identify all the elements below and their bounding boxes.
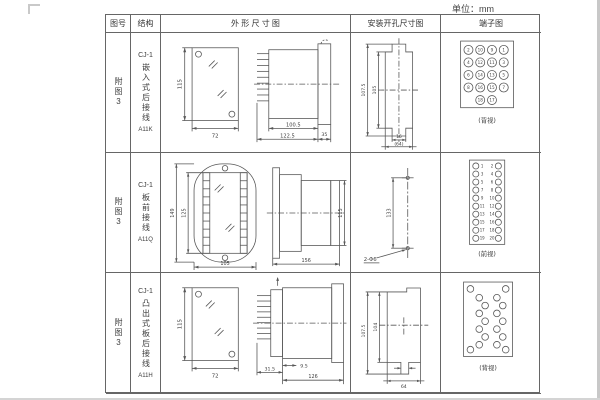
terminal-circles [467,286,509,353]
dim-cutout-width: 64 [400,384,406,390]
svg-text:13: 13 [480,211,485,216]
scan-corner-mark [28,4,40,14]
svg-text:14: 14 [489,211,494,216]
svg-text:15: 15 [489,85,495,90]
terminal-caption: (前视) [478,249,496,258]
dim-inner-height: 104 [372,323,378,332]
svg-text:5: 5 [502,72,505,77]
fig-no-text: 附图3 [114,77,122,108]
dimension-table: 图号 结构 外 形 尺 寸 图 安装开孔尺寸图 端子图 附图3 CJ-1 嵌入式… [105,14,540,393]
svg-text:17: 17 [489,97,495,102]
code-label: A11H [138,373,153,379]
dim-front-width: 72 [211,133,218,139]
dim-front-width: 72 [211,373,218,379]
svg-text:8: 8 [491,187,494,192]
structure-label: 嵌入式后接线 [142,63,150,123]
svg-text:3: 3 [481,171,484,176]
svg-text:10: 10 [478,47,484,52]
model-label: CJ-1 [138,288,153,295]
terminal-circles: 210914121136141358161571817 [464,45,508,104]
terminal-cell-a11k: 210914121136141358161571817 (背视) [441,33,541,153]
side-view: 100.5 122.5 35 [254,39,341,141]
header-fig-no: 图号 [106,15,131,33]
mounting-drawing-a11h: 107.5 104 64 [352,274,440,392]
dim-depth: 156 [301,258,310,264]
svg-text:6: 6 [491,179,494,184]
structure-a11h: CJ-1 凸出式板后接线 A11H [131,273,161,394]
dim-tab-width: 16 [396,133,402,139]
terminal-diagram-a11h: (背视) [442,274,540,392]
structure-a11q: CJ-1 板前接线 A11Q [131,153,161,273]
terminal-circles: 1357911131517192468101214161820 [473,162,502,240]
dim-front-height: 115 [177,319,183,329]
document-page: 单位：mm 图号 结构 外 形 尺 寸 图 安装开孔尺寸图 端子图 附图3 CJ… [0,0,600,400]
header-mounting: 安装开孔尺寸图 [351,15,441,33]
svg-text:5: 5 [481,179,484,184]
front-view: 115 72 [177,47,238,138]
svg-text:3: 3 [502,59,505,64]
code-label: A11K [138,127,152,133]
dim-outer-height: 107.5 [361,83,367,96]
dim-front-height: 115 [177,79,183,89]
terminal-diagram-a11q: 1357911131517192468101214161820 (前视) [442,154,540,272]
dim-outer-height: 149 [169,208,175,217]
dim-front-width: 105 [220,261,229,267]
dim-outer-height: 107.5 [361,325,367,338]
fig-no-a11h: 附图3 [106,273,131,394]
dim-base-depth: 31.5 [264,366,275,372]
fig-no-text: 附图3 [114,197,122,228]
model-label: CJ-1 [138,52,153,59]
outline-drawing-a11k: 115 72 100.5 [162,34,350,152]
svg-text:9: 9 [481,195,484,200]
structure-a11k: CJ-1 嵌入式后接线 A11K [131,33,161,153]
svg-text:1: 1 [481,163,484,168]
svg-text:15: 15 [480,219,485,224]
svg-text:7: 7 [481,187,484,192]
dim-inner-height: 125 [181,208,187,217]
dim-offset: 9.5 [300,363,308,369]
header-structure: 结构 [131,15,161,33]
svg-text:18: 18 [489,227,494,232]
svg-text:17: 17 [480,227,485,232]
mounting-drawing-a11q: 133 2-Φ6 [352,154,440,272]
model-label: CJ-1 [138,182,153,189]
svg-text:13: 13 [489,72,495,77]
fig-no-a11k: 附图3 [106,33,131,153]
outline-drawing-a11h: 115 72 31.5 [162,274,350,392]
fig-no-text: 附图3 [114,318,122,349]
svg-text:16: 16 [489,219,494,224]
svg-text:8: 8 [467,85,470,90]
front-view: 149 125 105 [169,163,255,269]
svg-text:2: 2 [467,47,470,52]
hole-spec-label: 2-Φ6 [363,256,377,262]
svg-text:14: 14 [478,72,484,77]
svg-text:19: 19 [480,235,485,240]
dim-hole-spacing: 133 [386,208,392,217]
side-view: 156 115 [266,167,346,265]
svg-text:6: 6 [467,72,470,77]
outline-cell-a11k: 115 72 100.5 [161,33,351,153]
outline-cell-a11q: 149 125 105 [161,153,351,273]
svg-text:12: 12 [489,203,494,208]
header-terminal: 端子图 [441,15,541,33]
dim-body-height: 115 [338,208,344,217]
dim-cutout-width: (64) [394,141,403,147]
code-label: A11Q [138,237,153,243]
svg-text:4: 4 [467,59,470,64]
mounting-cell-a11h: 107.5 104 64 [351,273,441,394]
dim-flange-depth: 35 [321,131,327,137]
front-view: 115 72 [177,288,238,379]
outline-drawing-a11q: 149 125 105 [162,154,350,272]
svg-text:7: 7 [502,85,505,90]
svg-text:11: 11 [489,59,495,64]
dim-body-depth: 100.5 [286,122,301,128]
dim-total-depth: 122.5 [280,133,295,139]
outline-cell-a11h: 115 72 31.5 [161,273,351,394]
structure-label: 凸出式板后接线 [142,299,150,369]
terminal-cell-a11q: 1357911131517192468101214161820 (前视) [441,153,541,273]
svg-text:1: 1 [502,47,505,52]
svg-text:4: 4 [491,171,494,176]
svg-text:11: 11 [480,203,485,208]
mounting-drawing-a11k: 107.5 105 16 (64) [352,34,440,152]
terminal-cell-a11h: (背视) [441,273,541,394]
svg-text:9: 9 [491,47,494,52]
header-outline: 外 形 尺 寸 图 [161,15,351,33]
side-view: 31.5 9.5 126 [253,277,346,384]
mounting-cell-a11q: 133 2-Φ6 [351,153,441,273]
svg-text:2: 2 [491,163,494,168]
fig-no-a11q: 附图3 [106,153,131,273]
terminal-diagram-a11k: 210914121136141358161571817 (背视) [442,34,540,152]
dim-inner-height: 105 [371,85,377,94]
svg-text:10: 10 [489,195,494,200]
dim-body-depth: 126 [308,374,317,380]
terminal-pins [256,296,270,339]
mounting-cell-a11k: 107.5 105 16 (64) [351,33,441,153]
structure-label: 板前接线 [142,193,150,233]
svg-text:20: 20 [489,235,494,240]
terminal-caption: (背视) [478,115,496,124]
terminal-caption: (背视) [479,363,497,372]
svg-text:12: 12 [478,59,484,64]
svg-text:16: 16 [478,85,484,90]
svg-text:18: 18 [478,97,484,102]
terminal-pins [256,53,268,100]
